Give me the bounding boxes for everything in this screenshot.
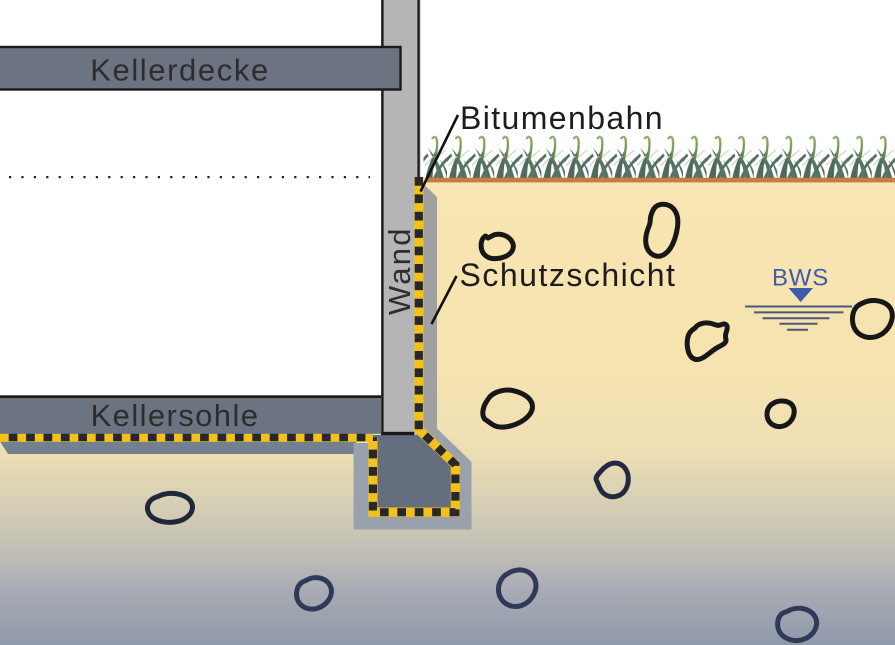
svg-text:Bitumenbahn: Bitumenbahn: [460, 100, 664, 136]
svg-text:Wand: Wand: [382, 226, 417, 315]
svg-text:Kellerdecke: Kellerdecke: [90, 52, 270, 87]
svg-text:BWS: BWS: [772, 265, 829, 292]
svg-text:Schutzschicht: Schutzschicht: [460, 257, 677, 293]
svg-text:Kellersohle: Kellersohle: [91, 398, 260, 433]
